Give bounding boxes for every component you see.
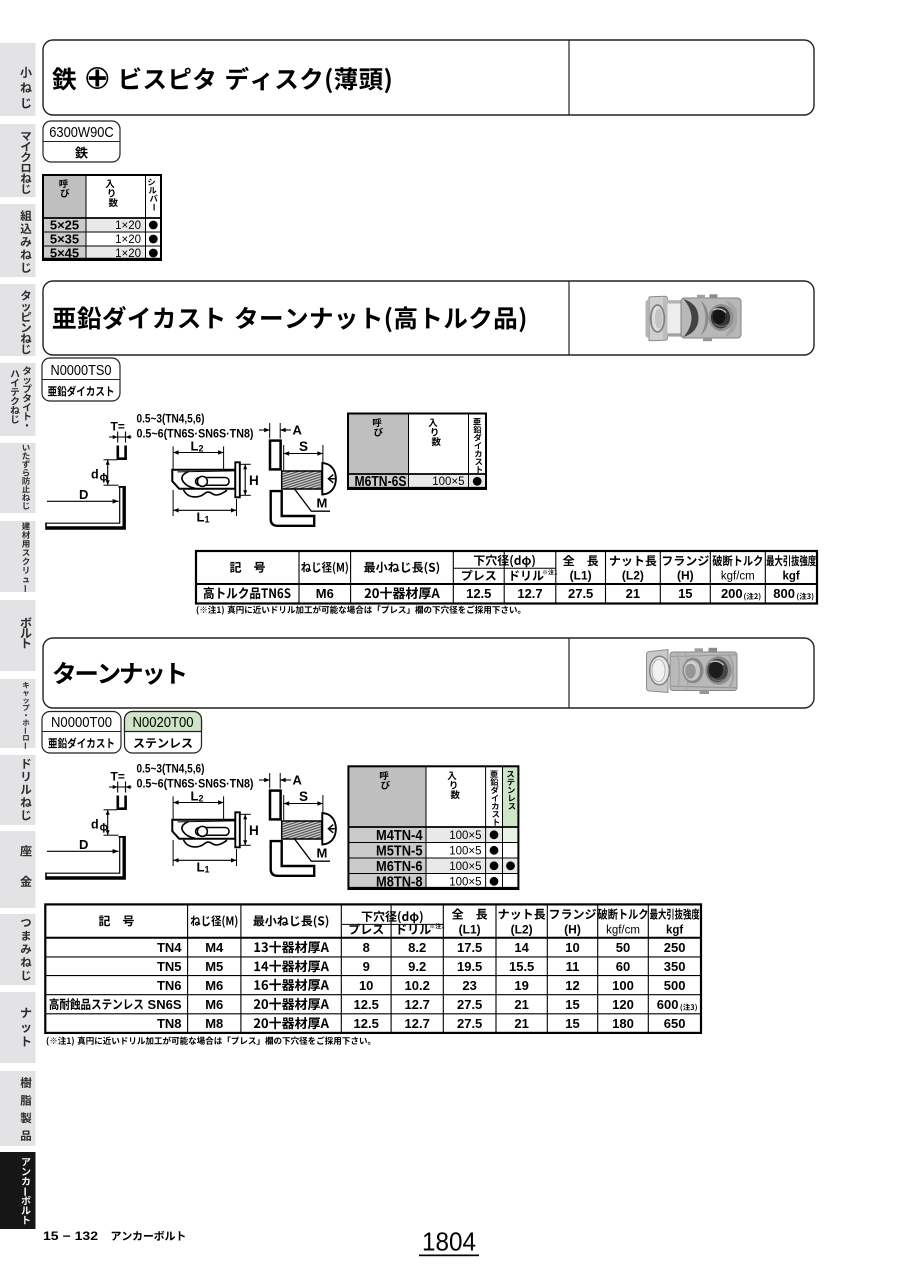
svg-text:SN6S: SN6S (148, 997, 182, 1012)
svg-text:23: 23 (462, 978, 476, 993)
svg-text:1×20: 1×20 (115, 220, 141, 232)
svg-text:12.7: 12.7 (405, 1016, 430, 1031)
svg-text:180: 180 (612, 1016, 634, 1031)
svg-text:9.2: 9.2 (408, 959, 426, 974)
svg-text:M6: M6 (205, 997, 223, 1012)
svg-text:TN8: TN8 (157, 1016, 182, 1031)
svg-text:(L2): (L2) (622, 569, 644, 583)
svg-text:TN5: TN5 (157, 959, 182, 974)
svg-text:500: 500 (664, 978, 686, 993)
svg-text:100×5: 100×5 (449, 830, 481, 842)
svg-text:12.5: 12.5 (354, 1016, 379, 1031)
svg-text:800: 800 (773, 586, 795, 601)
svg-text:250: 250 (664, 940, 686, 955)
svg-text:1804: 1804 (422, 1227, 476, 1257)
svg-text:12.5: 12.5 (354, 997, 379, 1012)
svg-text:21: 21 (514, 1016, 528, 1031)
svg-text:10.2: 10.2 (405, 978, 430, 993)
svg-text:12.5: 12.5 (466, 586, 491, 601)
svg-text:12: 12 (565, 978, 579, 993)
svg-text:10: 10 (565, 940, 579, 955)
svg-text:15.5: 15.5 (509, 959, 534, 974)
svg-text:kgf: kgf (783, 571, 800, 583)
svg-text:1×20: 1×20 (115, 234, 141, 246)
svg-text:(L1): (L1) (570, 569, 592, 583)
svg-text:1×20: 1×20 (115, 248, 141, 260)
svg-text:M6TN-6: M6TN-6 (376, 858, 423, 875)
svg-text:120: 120 (612, 997, 634, 1012)
svg-text:kgf/cm: kgf/cm (606, 924, 640, 936)
svg-text:650: 650 (664, 1016, 686, 1031)
svg-text:M8: M8 (205, 1016, 223, 1031)
svg-text:TN4: TN4 (157, 940, 182, 955)
svg-text:(H): (H) (677, 569, 694, 583)
svg-text:200: 200 (721, 586, 743, 601)
svg-text:9: 9 (363, 959, 370, 974)
svg-text:19.5: 19.5 (457, 959, 482, 974)
svg-text:M6: M6 (316, 586, 334, 601)
svg-text:600: 600 (657, 997, 679, 1012)
svg-text:100×5: 100×5 (449, 877, 481, 889)
svg-text:17.5: 17.5 (457, 940, 482, 955)
svg-text:M4: M4 (205, 940, 224, 955)
svg-text:12.7: 12.7 (517, 586, 542, 601)
svg-text:100×5: 100×5 (449, 846, 481, 858)
svg-text:(L2): (L2) (511, 922, 533, 936)
svg-text:21: 21 (626, 586, 640, 601)
svg-text:15: 15 (678, 586, 692, 601)
svg-text:6300W90C: 6300W90C (49, 124, 114, 141)
svg-text:15 − 132: 15 − 132 (43, 1229, 98, 1243)
svg-text:10: 10 (359, 978, 373, 993)
svg-text:100: 100 (612, 978, 634, 993)
svg-text:15: 15 (565, 1016, 579, 1031)
svg-text:M5TN-5: M5TN-5 (376, 842, 423, 859)
svg-text:N0000T00: N0000T00 (51, 715, 112, 731)
svg-text:M8TN-8: M8TN-8 (376, 873, 423, 890)
svg-text:M6TN-6S: M6TN-6S (355, 473, 407, 490)
svg-text:(L1): (L1) (459, 922, 481, 936)
svg-text:(H): (H) (564, 922, 581, 936)
svg-text:5×35: 5×35 (50, 231, 79, 246)
svg-text:27.5: 27.5 (568, 586, 593, 601)
svg-text:8: 8 (363, 940, 370, 955)
svg-text:kgf: kgf (666, 924, 683, 936)
svg-text:N0020T00: N0020T00 (133, 715, 194, 731)
svg-text:5×25: 5×25 (50, 217, 79, 232)
svg-text:kgf/cm: kgf/cm (721, 571, 755, 583)
svg-text:19: 19 (514, 978, 528, 993)
svg-text:21: 21 (514, 997, 528, 1012)
svg-text:50: 50 (616, 940, 630, 955)
svg-text:27.5: 27.5 (457, 1016, 482, 1031)
svg-text:100×5: 100×5 (432, 476, 464, 488)
svg-text:27.5: 27.5 (457, 997, 482, 1012)
svg-text:TN6: TN6 (157, 978, 182, 993)
svg-text:350: 350 (664, 959, 686, 974)
svg-text:N0000TS0: N0000TS0 (51, 363, 112, 379)
svg-text:12.7: 12.7 (405, 997, 430, 1012)
svg-text:M5: M5 (205, 959, 223, 974)
svg-text:15: 15 (565, 997, 579, 1012)
svg-text:M4TN-4: M4TN-4 (376, 827, 423, 844)
svg-text:60: 60 (616, 959, 630, 974)
svg-text:14: 14 (514, 940, 529, 955)
svg-text:11: 11 (566, 959, 580, 974)
svg-text:5×45: 5×45 (50, 245, 79, 260)
svg-text:M6: M6 (205, 978, 223, 993)
svg-text:100×5: 100×5 (449, 861, 481, 873)
svg-text:8.2: 8.2 (408, 940, 426, 955)
